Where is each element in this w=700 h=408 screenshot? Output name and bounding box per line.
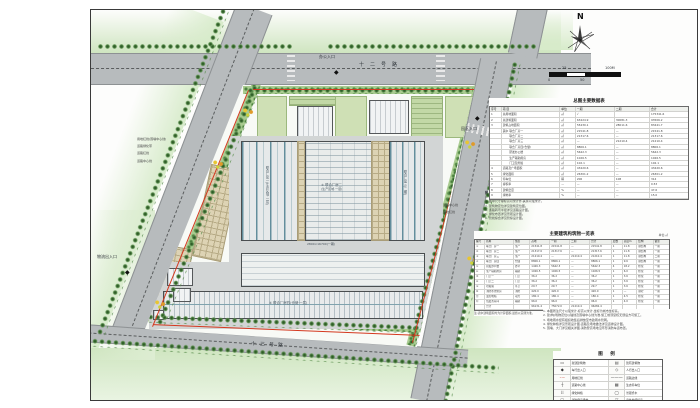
tree-row-top-2 — [327, 43, 537, 51]
table-cell: — — [615, 193, 650, 198]
table-cell: ▦ — [609, 382, 626, 389]
table-cell: 用地红线 — [443, 209, 458, 216]
corridor-strip-2 — [371, 141, 391, 241]
factory-hall-1 — [241, 141, 299, 241]
site-data-table-title: 总图主要数据表 — [489, 98, 689, 106]
table-cell: ▤ — [609, 360, 626, 367]
scale-bar-block: 25 100M 0 50 — [547, 66, 627, 84]
table-cell: ┼ — [554, 382, 571, 389]
table-row: 9绿地率%——15.0 — [490, 193, 688, 198]
table-cell: ⠿ — [554, 390, 571, 397]
table-cell: 既有建筑物 — [625, 360, 662, 367]
table-cell: –·– — [554, 375, 571, 382]
table-cell: — — [576, 193, 615, 198]
entrance-marker-logistics: ◆ — [125, 270, 130, 276]
north-arrow-block: N — [559, 12, 603, 64]
table-cell: 道路绿化带 — [137, 143, 166, 150]
table-cell: 绿化种植 — [571, 390, 609, 397]
table-cell: 生态停车位 — [625, 382, 662, 389]
buildings-table-panel: 主要建筑构筑物一览表 单位:㎡ 编号名称性质占地一期二期合计层数高度m结构备注①… — [474, 231, 670, 316]
leader-label: 用地红线 — [443, 209, 458, 216]
leader-label: 道路绿化带 — [137, 143, 166, 150]
note-item: 6. 管线综合详见管综设计图。 — [485, 216, 597, 220]
garden-plot — [289, 96, 341, 106]
factory-3-label: 联合厂房三(二期) — [403, 170, 408, 195]
factory-2-label-line2: (生产区域·一层) — [321, 187, 342, 191]
table-cell: 车行出入口 — [571, 367, 609, 374]
table-cell: 景观乔木 — [625, 390, 662, 397]
scale-label-100: 100M — [605, 66, 615, 70]
table-cell: 道路中心线 — [137, 158, 166, 165]
general-notes: 1. 本图所注尺寸以毫米计,标高以米计,坐标为城市坐标系。2. 建(构)筑物定位… — [543, 309, 698, 330]
legend-row: –·–用地红线———道路边线 — [554, 375, 662, 382]
table-cell: 道路中心线 — [443, 202, 458, 209]
table-cell: % — [560, 193, 576, 198]
leader-label: 道路红线 — [137, 150, 166, 157]
factory-hall-2 — [305, 141, 373, 241]
table-cell: ▽ — [609, 397, 626, 401]
internal-road-cross — [229, 239, 443, 253]
boundary-leader-labels-right: 道路中心线用地红线 — [443, 202, 458, 216]
note-item: 5. 围墙、大门详见相关详图,消防登高场地沿环形消防车道布置。 — [543, 326, 698, 330]
factory-1-label: 联合厂房一(生产区域·一层) — [265, 166, 270, 205]
table-cell: 6. 管线综合详见管综设计图。 — [485, 216, 597, 220]
legend-row: ◆车行出入口◇人行出入口 — [554, 367, 662, 374]
office-building-1 — [297, 106, 333, 140]
boundary-leader-labels-left: 用地红线(围墙中心线)道路绿化带道路红线道路中心线 — [137, 136, 166, 165]
legend-row: ▭新建建筑物▤既有建筑物 — [554, 360, 662, 367]
garden-plot — [335, 96, 367, 140]
table-cell: 室外地坪标高 — [625, 397, 662, 401]
scale-label-50: 50 — [580, 78, 584, 82]
north-label: N — [577, 12, 584, 21]
table-cell: 9 — [490, 193, 502, 198]
garden-plot — [411, 96, 443, 140]
table-cell: 合计 — [485, 305, 514, 310]
table-cell: 道路中心线 — [571, 382, 609, 389]
entrance-label-logistics: 物流出入口 — [97, 254, 117, 260]
leader-label: 道路中心线 — [137, 158, 166, 165]
entrance-label-office: 办公入口 — [319, 54, 335, 60]
shrub-cluster — [241, 106, 255, 117]
table-cell: 消防登高场地 — [571, 397, 609, 401]
entrance-marker-office: ◆ — [334, 70, 339, 76]
table-cell: 绿地率 — [502, 193, 560, 198]
compass-rose-icon — [559, 20, 603, 64]
table-cell: ——— — [609, 375, 626, 382]
crosswalk-west — [287, 55, 295, 81]
table-cell: ◇ — [609, 367, 626, 374]
entrance-label-park: 园区入口 — [461, 126, 477, 132]
road-label-no12: 十二号路 — [359, 61, 403, 68]
legend-row: ▢消防登高场地▽室外地坪标高 — [554, 397, 662, 401]
shrub-cluster — [153, 298, 167, 309]
legend-panel: 图 例 ▭新建建筑物▤既有建筑物◆车行出入口◇人行出入口–·–用地红线———道路… — [553, 351, 663, 401]
tree-row-top-1 — [97, 43, 293, 51]
table-cell: ▢ — [554, 397, 571, 401]
sheet-frame: 十二号路 十三号路 办公入口 ◆ 园区入口 ◆ 物流出入口 ◆ 用地红线(围墙中… — [90, 9, 698, 401]
table-cell: ◆ — [554, 367, 571, 374]
crosswalk-office-entrance — [436, 55, 445, 81]
table-cell: 15.0 — [650, 193, 688, 198]
leader-label: 用地红线(围墙中心线) — [137, 136, 166, 143]
legend-row: ⠿绿化种植◯景观乔木 — [554, 390, 662, 397]
table-cell: ▭ — [554, 360, 571, 367]
garden-plot — [257, 96, 287, 140]
table-cell: ◯ — [609, 390, 626, 397]
table-cell: 道路红线 — [137, 150, 166, 157]
table-cell — [475, 305, 485, 310]
legend-title: 图 例 — [553, 351, 663, 359]
shrub-cluster — [211, 158, 225, 169]
scale-label-0: 0 — [548, 78, 550, 82]
factory-4-label: ④ 联合厂房四(仓储·一层) — [269, 300, 307, 305]
office-building-2 — [369, 100, 409, 134]
table-cell: 人行出入口 — [625, 367, 662, 374]
table-cell: 5. 围墙、大门详见相关详图,消防登高场地沿环形消防车道布置。 — [543, 326, 698, 330]
scale-label-25: 25 — [562, 66, 566, 70]
table-cell: 新建建筑物 — [571, 360, 609, 367]
leader-label: 道路中心线 — [443, 202, 458, 209]
scale-bar — [549, 72, 621, 77]
factory-extension — [241, 253, 425, 287]
site-data-table-panel: 总图主要数据表 序号项 目单位一期二期合计1总用地面积㎡√175341.62总建… — [489, 98, 689, 200]
entrance-marker-park: ◆ — [475, 116, 480, 122]
table-cell: 用地红线(围墙中心线) — [137, 136, 166, 143]
legend-row: ┼道路中心线▦生态停车位 — [554, 382, 662, 389]
table-cell: 道路边线 — [625, 375, 662, 382]
siteplan-canvas: 十二号路 十三号路 办公入口 ◆ 园区入口 ◆ 物流出入口 ◆ 用地红线(围墙中… — [0, 0, 700, 408]
legend-table: ▭新建建筑物▤既有建筑物◆车行出入口◇人行出入口–·–用地红线———道路边线┼道… — [553, 359, 663, 401]
buildings-table: 编号名称性质占地一期二期合计层数高度m结构备注①联合厂房一生产21541.821… — [474, 239, 670, 311]
yard-dimension-label: 2800×16700(一期) — [307, 242, 335, 246]
buildings-table-unit-note: 单位:㎡ — [659, 233, 668, 237]
site-data-table: 序号项 目单位一期二期合计1总用地面积㎡√175341.62总建筑面积㎡6342… — [489, 106, 689, 200]
buildings-table-title: 主要建筑构筑物一览表 — [474, 231, 670, 239]
table-cell — [514, 305, 530, 310]
shrub-cluster — [463, 138, 477, 149]
table-cell: 用地红线 — [571, 375, 609, 382]
